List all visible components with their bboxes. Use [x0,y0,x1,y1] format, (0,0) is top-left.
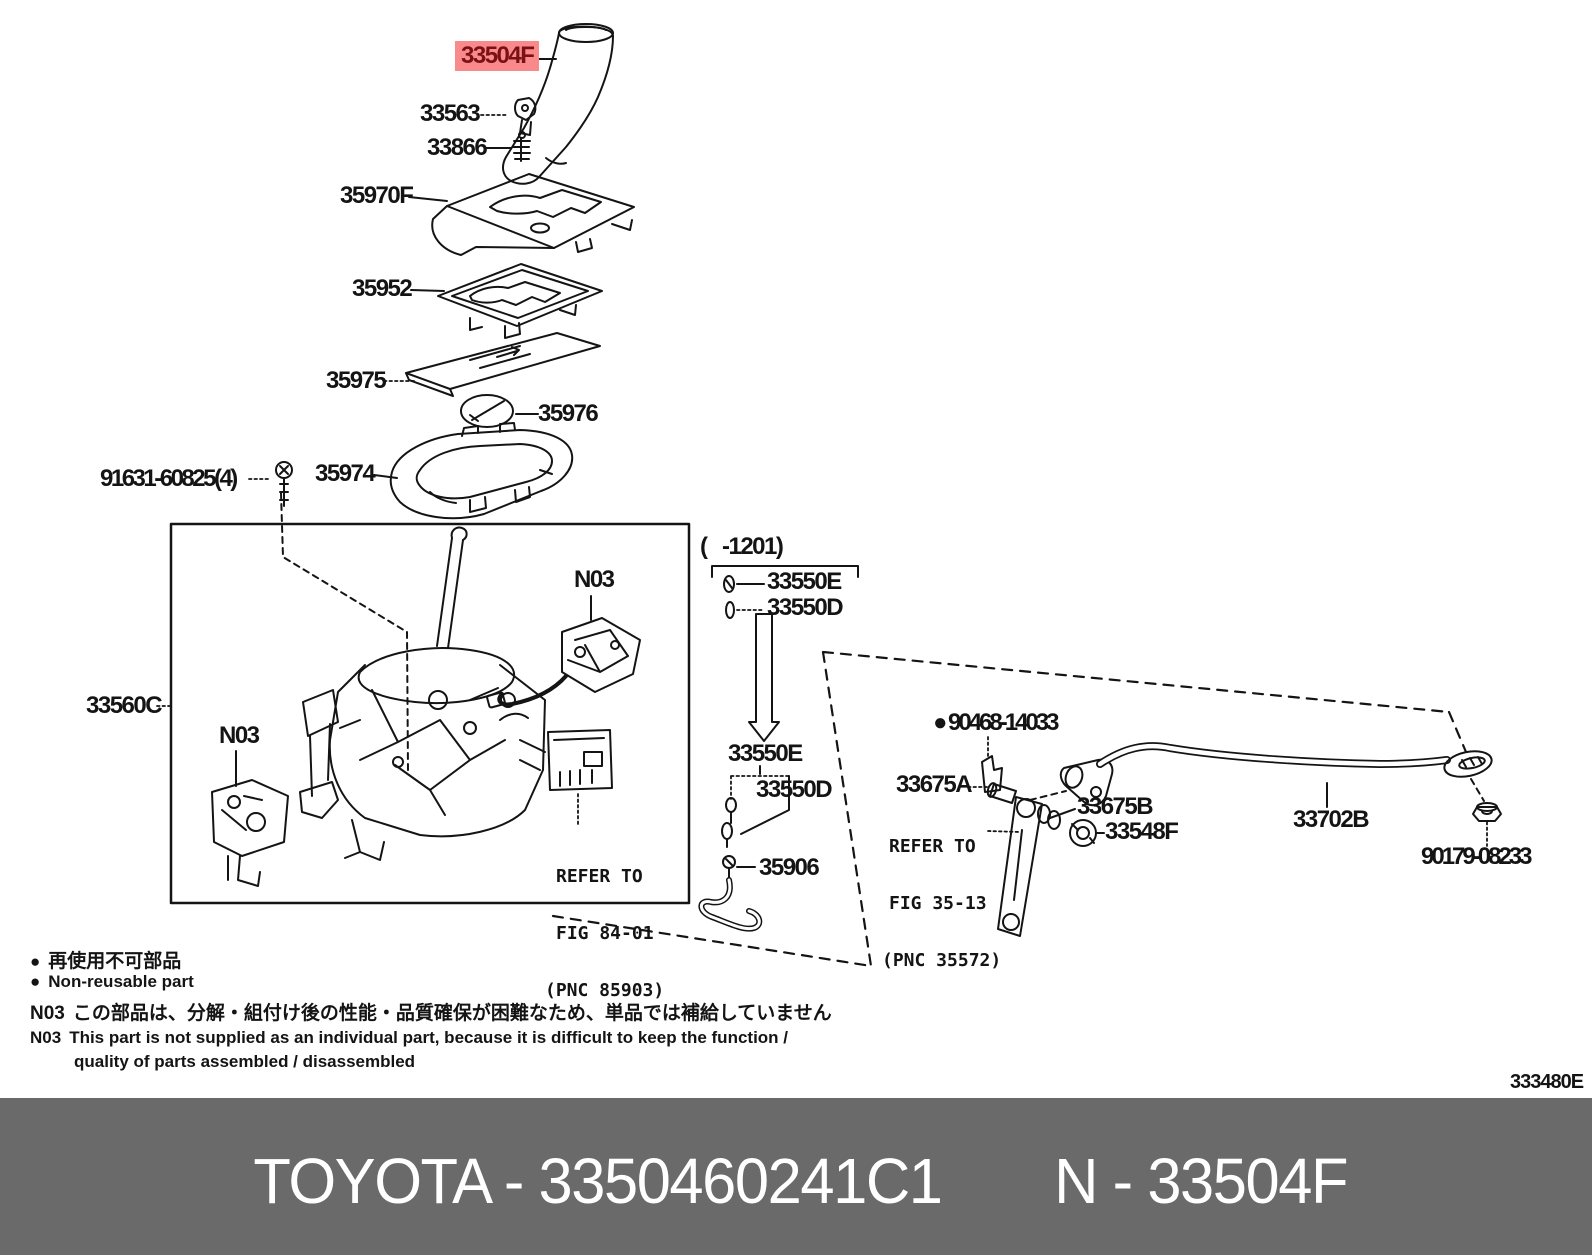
spring-drawing [513,132,530,161]
lower-housing-drawing [391,423,573,518]
screw-icons [722,576,736,879]
note-label-n03-upper: N03 [574,567,614,592]
part-label-35976: 35976 [538,401,597,426]
legend-n03-note-jp: N03 この部品は、分解・組付け後の性能・品質確保が困難なため、単品では補給して… [30,998,832,1025]
diagram-line-art [0,0,1592,1100]
bolt-drawing [276,462,292,506]
parts-diagram-page: { "highlight": {"label": "33504F", "bg":… [0,0,1592,1258]
part-label-35975: 35975 [326,368,385,393]
non-reusable-bullet-icon: ● [933,711,946,735]
refer-note-fig-84-01: REFER TO FIG 84-01 (PNC 85903) [556,829,664,1019]
down-arrow-icon [749,614,779,741]
highlight-box: 33504F [455,41,539,71]
slide-plate-drawing [406,333,600,396]
grommet-drawing [1070,820,1096,846]
shift-lever-assembly-drawing [300,528,545,860]
footer-part-number: TOYOTA - 3350460241C1 [253,1144,941,1218]
part-label-35970f: 35970F [340,183,412,208]
part-label-33550e-bottom: 33550E [728,741,802,766]
note-label-n03-lower: N03 [219,723,259,748]
part-label-35952: 35952 [352,276,411,301]
part-label-33550d-bottom: 33550D [756,777,831,802]
part-label-33563: 33563 [420,101,479,126]
legend-n03-note-en-line1: N03 This part is not supplied as an indi… [30,1028,788,1048]
part-label-33675a: 33675A [896,772,971,797]
non-reusable-bullet-icon: ● [30,953,40,970]
non-reusable-bullet-icon: ● [30,973,40,990]
refer-note-fig-35-13: REFER TO FIG 35-13 (PNC 35572) [889,799,1001,989]
control-module-drawing [548,730,612,790]
position-indicator-housing-drawing [438,264,602,338]
shift-lock-solenoid-drawing [487,618,640,708]
legend-n03-note-en-line2: quality of parts assembled / disassemble… [74,1052,415,1072]
part-label-90468: ●90468-14033 [933,710,1056,735]
legend-non-reusable-jp: ● 再使用不可部品 [30,946,181,973]
part-label-33550e-top: 33550E [767,569,841,594]
footer-banner: TOYOTA - 3350460241C1 N - 33504F [0,1098,1592,1255]
part-label-33504f-highlighted: 33504F [455,43,539,68]
part-label-33866: 33866 [427,135,486,160]
cable-squiggle-drawing [701,880,759,929]
part-label-33675b: 33675B [1077,794,1152,819]
part-label-90179: 90179-08233 [1421,844,1529,869]
link-lever-drawing [998,797,1042,936]
nut-drawing [1473,803,1501,821]
figure-number: 333480E [1510,1071,1583,1094]
part-label-33702b: 33702B [1293,807,1368,832]
part-label-33560c: 33560C [86,693,161,718]
legend-non-reusable-en: ● Non-reusable part [30,972,194,992]
part-label-33548f: 33548F [1105,819,1177,844]
part-label-91631-60825: 91631-60825(4) [100,466,236,491]
key-interlock-solenoid-drawing [212,780,288,886]
range-label-1201: ( -1201) [700,534,782,559]
detent-button-drawing [515,98,535,135]
medallion-drawing [461,395,513,427]
footer-pnc-ref: N - 33504F [1054,1144,1347,1218]
part-label-33550d-top: 33550D [767,595,842,620]
part-label-35974: 35974 [315,461,374,486]
shift-panel-cover-drawing [432,174,634,255]
part-label-35906: 35906 [759,855,818,880]
